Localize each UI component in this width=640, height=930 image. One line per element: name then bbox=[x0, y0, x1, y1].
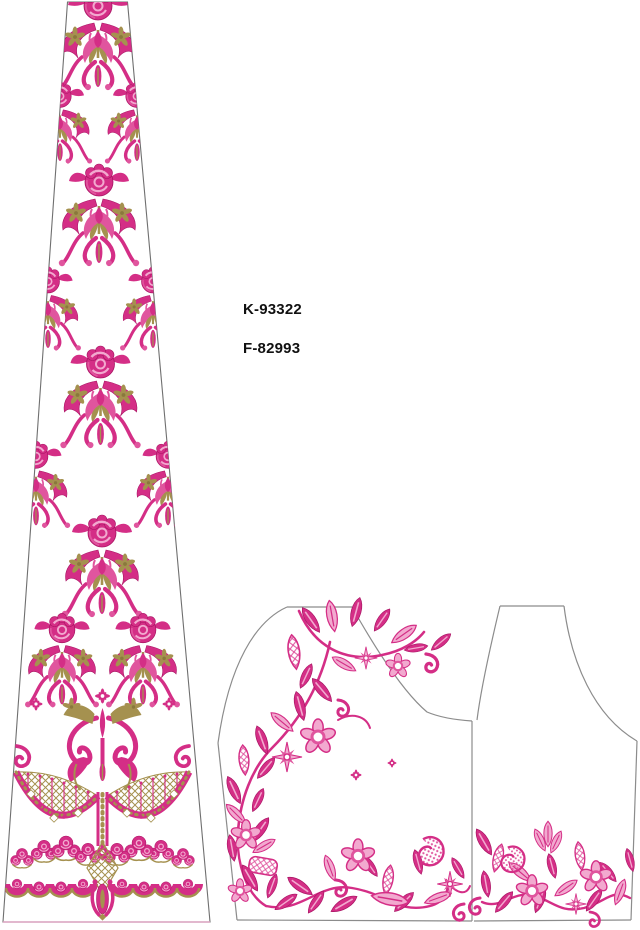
back-hem-border bbox=[469, 821, 636, 926]
design-code-f: F-82993 bbox=[243, 341, 302, 356]
damask-motif bbox=[60, 346, 140, 448]
edge-motif bbox=[2, 441, 70, 528]
damask-motif bbox=[62, 515, 142, 617]
star-flower bbox=[272, 742, 302, 772]
edge-motif bbox=[105, 82, 169, 164]
damask-motif bbox=[25, 613, 99, 707]
front-neckline bbox=[352, 607, 472, 721]
edge-motif bbox=[120, 267, 186, 351]
edge-motif bbox=[134, 441, 202, 528]
blouse-pattern bbox=[218, 596, 637, 926]
front-hem bbox=[237, 920, 472, 921]
design-codes: K-93322 F-82993 bbox=[243, 302, 302, 356]
back-neckline bbox=[477, 606, 500, 720]
blouse-embroidery bbox=[223, 596, 637, 926]
front-hem-border bbox=[285, 833, 467, 920]
back-armhole bbox=[564, 606, 637, 741]
back-side-seam bbox=[631, 741, 637, 920]
damask-motif bbox=[106, 613, 180, 707]
damask-motif bbox=[59, 164, 139, 266]
embroidery-design-sheet: K-93322 F-82993 bbox=[0, 0, 640, 930]
design-canvas bbox=[0, 0, 640, 930]
star-flower bbox=[355, 647, 378, 670]
edge-motif bbox=[28, 82, 92, 164]
lehenga-kali-panel bbox=[2, 0, 210, 922]
five-petal-flower bbox=[385, 653, 411, 678]
design-code-k: K-93322 bbox=[243, 302, 302, 317]
corner-spray bbox=[223, 675, 396, 913]
five-petal-flower bbox=[299, 719, 336, 755]
star-flower bbox=[566, 894, 587, 915]
back-hem bbox=[474, 920, 631, 921]
neckline-vine bbox=[286, 596, 453, 690]
